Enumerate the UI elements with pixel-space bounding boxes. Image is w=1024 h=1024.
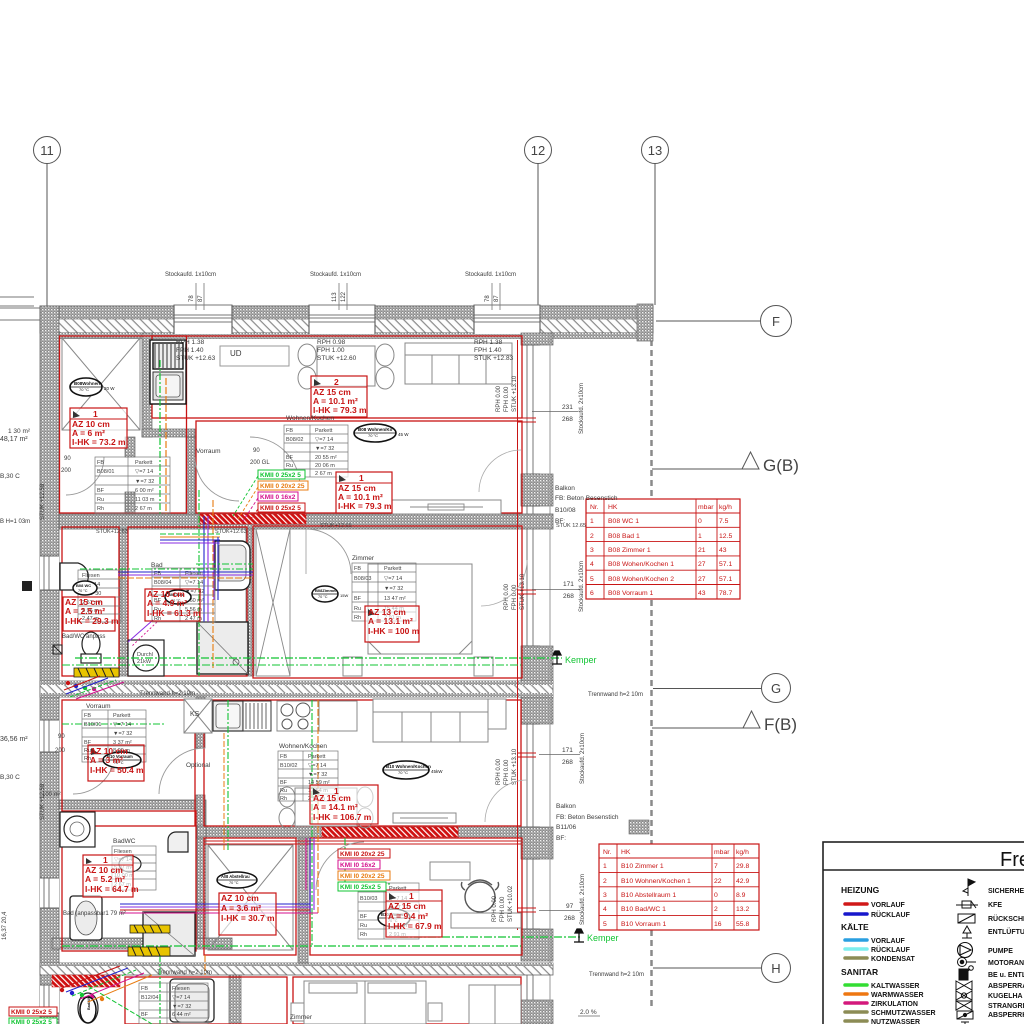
svg-text:I-HK = 73.2 m: I-HK = 73.2 m <box>72 437 126 447</box>
svg-text:1: 1 <box>103 855 108 865</box>
svg-text:BF: BF <box>354 596 362 602</box>
svg-text:kg/h: kg/h <box>719 504 732 511</box>
svg-text:87: 87 <box>494 295 500 302</box>
svg-text:G: G <box>771 681 781 696</box>
svg-text:268: 268 <box>564 915 575 922</box>
svg-text:STUK +12.83: STUK +12.83 <box>474 355 514 362</box>
svg-text:RPH 0.00: RPH 0.00 <box>496 385 502 412</box>
svg-text:RÜCKLAUF: RÜCKLAUF <box>871 910 911 919</box>
svg-text:1 30 m²: 1 30 m² <box>8 428 31 435</box>
svg-text:12: 12 <box>531 143 545 158</box>
svg-text:ABSPERRK: ABSPERRK <box>988 1012 1024 1019</box>
svg-text:B10/02: B10/02 <box>280 763 297 769</box>
svg-text:STUK+12.65: STUK+12.65 <box>320 523 352 529</box>
svg-text:AZ 10 cm: AZ 10 cm <box>221 893 259 903</box>
svg-text:Stockaufd. 2x10cm: Stockaufd. 2x10cm <box>580 733 586 784</box>
svg-text:FB: FB <box>154 571 161 577</box>
svg-text:B10/08: B10/08 <box>555 507 576 514</box>
svg-text:200: 200 <box>61 468 72 474</box>
svg-text:I-HK = 67.9 m: I-HK = 67.9 m <box>388 921 442 931</box>
svg-text:FPH 1.40: FPH 1.40 <box>474 347 502 354</box>
svg-text:Parkett: Parkett <box>384 566 402 572</box>
svg-text:I-HK = 61.3 m: I-HK = 61.3 m <box>147 608 201 618</box>
svg-text:78.7: 78.7 <box>719 590 732 597</box>
svg-text:Ru: Ru <box>286 463 293 469</box>
svg-text:RÜCKLAUF: RÜCKLAUF <box>871 945 911 954</box>
svg-text:▽=7 14: ▽=7 14 <box>135 469 153 475</box>
svg-text:171: 171 <box>563 581 574 588</box>
svg-text:A = 5.2 m²: A = 5.2 m² <box>85 874 125 884</box>
svg-text:A/B Abstellrau: A/B Abstellrau <box>221 874 250 879</box>
svg-text:6 44 m²: 6 44 m² <box>172 1012 191 1018</box>
svg-text:KFE: KFE <box>988 902 1002 909</box>
svg-text:B10 Zimmer 1: B10 Zimmer 1 <box>621 863 664 870</box>
svg-text:B08 WC: B08 WC <box>76 583 91 588</box>
svg-text:70 °C: 70 °C <box>78 589 88 593</box>
svg-text:BadWC: BadWC <box>113 838 136 845</box>
svg-text:36,56 m²: 36,56 m² <box>0 736 28 743</box>
svg-text:70 °C: 70 °C <box>368 433 378 438</box>
svg-text:A = 2.5 m²: A = 2.5 m² <box>65 606 105 616</box>
svg-text:13.2: 13.2 <box>736 906 749 913</box>
svg-text:Trennwand h=2 10m: Trennwand h=2 10m <box>589 972 644 978</box>
svg-text:70 °C: 70 °C <box>318 595 328 599</box>
svg-text:FB: FB <box>354 566 361 572</box>
svg-text:▽=7 14: ▽=7 14 <box>308 763 326 769</box>
svg-text:KONDENSAT: KONDENSAT <box>871 956 916 963</box>
svg-text:KS: KS <box>190 711 200 718</box>
svg-text:78: 78 <box>189 295 195 302</box>
svg-text:B08/04: B08/04 <box>154 580 171 586</box>
svg-text:4: 4 <box>603 906 607 913</box>
svg-text:Bad/Wn: Bad/Wn <box>87 995 91 1010</box>
svg-text:20 W: 20 W <box>104 386 115 391</box>
svg-text:Stockaufd. 2x10cm: Stockaufd. 2x10cm <box>579 383 585 434</box>
svg-text:12.5: 12.5 <box>719 533 732 540</box>
svg-text:1: 1 <box>603 863 607 870</box>
svg-text:BF: BF <box>280 780 288 786</box>
svg-text:B10 Wohnen/Kochen: B10 Wohnen/Kochen <box>386 764 431 769</box>
svg-text:mbar: mbar <box>698 504 714 511</box>
svg-text:Parkett: Parkett <box>315 428 333 434</box>
svg-text:90: 90 <box>58 734 65 740</box>
svg-text:21kW: 21kW <box>137 659 152 665</box>
svg-text:2: 2 <box>714 906 718 913</box>
svg-text:▽=7 14: ▽=7 14 <box>185 580 203 586</box>
svg-text:FPH 0.00: FPH 0.00 <box>504 759 510 785</box>
svg-text:20 55 m²: 20 55 m² <box>315 455 337 461</box>
svg-text:B10 Vorraum 1: B10 Vorraum 1 <box>621 921 667 928</box>
svg-text:▼=7 32: ▼=7 32 <box>135 479 154 485</box>
svg-text:KMII 0 20x2 25: KMII 0 20x2 25 <box>260 483 305 490</box>
svg-text:KMII 0 25x2 5: KMII 0 25x2 5 <box>260 472 301 479</box>
svg-text:RÜCKSCHLA: RÜCKSCHLA <box>988 914 1024 923</box>
svg-text:STRANGRE: STRANGRE <box>988 1003 1024 1010</box>
svg-text:BF:: BF: <box>556 835 566 842</box>
svg-text:FB: FB <box>84 713 91 719</box>
svg-text:H: H <box>771 961 780 976</box>
svg-text:1: 1 <box>698 533 702 540</box>
svg-text:RPH 0.00: RPH 0.00 <box>496 758 502 785</box>
svg-text:B08/01: B08/01 <box>97 469 114 475</box>
svg-text:▼=7 32: ▼=7 32 <box>308 772 327 778</box>
svg-text:90: 90 <box>253 448 260 454</box>
svg-text:BF: BF <box>141 1012 149 1018</box>
svg-text:7.5: 7.5 <box>719 518 729 525</box>
svg-text:STUK 12.65: STUK 12.65 <box>556 523 586 529</box>
svg-text:NUTZWASSER: NUTZWASSER <box>871 1019 920 1024</box>
svg-text:Rh: Rh <box>354 615 361 621</box>
svg-text:Parkett: Parkett <box>113 713 131 719</box>
svg-text:F: F <box>772 314 780 329</box>
svg-text:B08 Wohen/Kochen 1: B08 Wohen/Kochen 1 <box>608 561 674 568</box>
svg-text:VORLAUF: VORLAUF <box>871 902 906 909</box>
svg-text:I-HK = 79.3 m: I-HK = 79.3 m <box>313 405 367 415</box>
svg-text:ABSPERRA: ABSPERRA <box>988 983 1024 990</box>
svg-text:70 °C: 70 °C <box>79 387 89 392</box>
svg-text:▼=7 32: ▼=7 32 <box>384 586 403 592</box>
svg-text:FPH 0.00: FPH 0.00 <box>504 386 510 412</box>
svg-text:SANITAR: SANITAR <box>841 967 878 977</box>
svg-text:BF: BF <box>360 914 368 920</box>
svg-text:90: 90 <box>64 456 71 462</box>
svg-text:B10/03: B10/03 <box>360 896 377 902</box>
svg-text:Balkon: Balkon <box>555 485 575 492</box>
svg-text:B10 Abstellraum 1: B10 Abstellraum 1 <box>621 892 676 899</box>
svg-text:B,30 C: B,30 C <box>0 473 20 480</box>
svg-text:FPH 1.00: FPH 1.00 <box>317 347 345 354</box>
svg-text:▽=7 14: ▽=7 14 <box>113 722 131 728</box>
svg-text:87: 87 <box>198 295 204 302</box>
svg-text:FPH 0.00: FPH 0.00 <box>512 584 518 610</box>
svg-text:B08 Zimmer 1: B08 Zimmer 1 <box>608 547 651 554</box>
svg-text:42.9: 42.9 <box>736 878 749 885</box>
svg-text:HEIZUNG: HEIZUNG <box>841 885 880 895</box>
svg-text:29.8: 29.8 <box>736 863 749 870</box>
svg-text:STUK +12.63: STUK +12.63 <box>176 355 216 362</box>
svg-text:Rh: Rh <box>97 506 104 512</box>
svg-text:Optional: Optional <box>186 762 211 769</box>
svg-text:▼=7 32: ▼=7 32 <box>172 1004 191 1010</box>
svg-text:Stockaufd. 2x10cm: Stockaufd. 2x10cm <box>580 874 586 925</box>
svg-text:0: 0 <box>714 892 718 899</box>
svg-text:WARMWASSER: WARMWASSER <box>871 992 924 999</box>
svg-text:Trennwand h=2 10m: Trennwand h=2 10m <box>157 970 212 976</box>
svg-text:Bad (anpassbar1 79 m²: Bad (anpassbar1 79 m² <box>63 911 126 917</box>
svg-text:A = 14.1 m²: A = 14.1 m² <box>313 802 358 812</box>
svg-text:STUK +13.10: STUK +13.10 <box>512 375 518 412</box>
svg-text:Fliesen: Fliesen <box>114 849 132 855</box>
svg-text:STUK+12.63: STUK+12.63 <box>215 529 247 535</box>
svg-text:FPH 0.00: FPH 0.00 <box>500 896 506 922</box>
svg-text:Ru: Ru <box>354 606 361 612</box>
svg-text:VORLAUF: VORLAUF <box>871 938 906 945</box>
svg-text:ENTLÜFTU: ENTLÜFTU <box>988 927 1024 936</box>
svg-text:I-HK = 64.7 m: I-HK = 64.7 m <box>85 884 139 894</box>
svg-text:FB: FB <box>141 986 148 992</box>
svg-text:AZ 15 cm: AZ 15 cm <box>388 901 426 911</box>
svg-text:B10 Bad/WC 1: B10 Bad/WC 1 <box>621 906 666 913</box>
svg-text:78: 78 <box>485 295 491 302</box>
svg-text:22: 22 <box>714 878 722 885</box>
svg-text:Fre: Fre <box>1000 849 1024 871</box>
svg-text:SICHERHEIT: SICHERHEIT <box>988 888 1024 895</box>
svg-text:Ru: Ru <box>97 497 104 503</box>
svg-text:RPH 0.98: RPH 0.98 <box>317 339 346 346</box>
svg-text:16: 16 <box>714 921 722 928</box>
svg-text:13 47 m²: 13 47 m² <box>384 596 406 602</box>
svg-text:F(B): F(B) <box>764 715 797 734</box>
svg-text:HK: HK <box>621 849 631 856</box>
svg-text:I-HK = 30.7 m: I-HK = 30.7 m <box>221 913 275 923</box>
svg-text:Stockaufd. 1x10cm: Stockaufd. 1x10cm <box>165 272 216 278</box>
svg-text:mbar: mbar <box>714 849 730 856</box>
svg-text:Wohnen/Kochen: Wohnen/Kochen <box>279 743 327 750</box>
svg-text:UD: UD <box>230 349 242 358</box>
svg-text:97: 97 <box>566 903 574 910</box>
svg-text:FB: Beton Besenstich: FB: Beton Besenstich <box>555 495 618 502</box>
svg-text:Ru: Ru <box>280 788 287 794</box>
svg-text:BE u. ENTL: BE u. ENTL <box>988 972 1024 979</box>
svg-text:171: 171 <box>562 747 573 754</box>
svg-text:70 °C: 70 °C <box>229 881 239 885</box>
svg-text:1: 1 <box>409 891 414 901</box>
svg-text:KMII 0 25x2 5: KMII 0 25x2 5 <box>11 1009 52 1016</box>
svg-text:Kemper: Kemper <box>587 933 619 943</box>
svg-text:6: 6 <box>590 590 594 597</box>
svg-text:Parkett: Parkett <box>135 460 153 466</box>
svg-text:Nr.: Nr. <box>603 849 612 856</box>
svg-text:2: 2 <box>334 377 339 387</box>
svg-text:KÄLTE: KÄLTE <box>841 922 869 932</box>
svg-text:Fliesen: Fliesen <box>82 573 100 579</box>
svg-text:I-HK = 100 m: I-HK = 100 m <box>368 626 420 636</box>
svg-text:FB: Beton Besenstich: FB: Beton Besenstich <box>556 814 619 821</box>
svg-text:113: 113 <box>332 292 338 302</box>
svg-text:1: 1 <box>359 473 364 483</box>
svg-text:A = 4.9 m²: A = 4.9 m² <box>147 598 187 608</box>
svg-text:ZIRKULATION: ZIRKULATION <box>871 1001 918 1008</box>
svg-text:57.1: 57.1 <box>719 561 732 568</box>
svg-text:Fliesen: Fliesen <box>185 571 203 577</box>
svg-text:43: 43 <box>719 547 727 554</box>
svg-text:200 GL: 200 GL <box>250 460 270 466</box>
svg-text:B,30 C: B,30 C <box>0 774 20 781</box>
svg-text:KMI I0 20x2 25: KMI I0 20x2 25 <box>340 851 385 858</box>
svg-text:1: 1 <box>93 409 98 419</box>
svg-text:STUK +12.58: STUK +12.58 <box>40 783 46 820</box>
svg-text:STUK +12.60: STUK +12.60 <box>317 355 357 362</box>
svg-text:Zimmer: Zimmer <box>352 555 375 562</box>
svg-text:Stockaufd. 1x10cm: Stockaufd. 1x10cm <box>465 272 516 278</box>
svg-text:STUK +13.10: STUK +13.10 <box>512 748 518 785</box>
svg-text:21: 21 <box>698 547 706 554</box>
svg-text:A = 9.4 m²: A = 9.4 m² <box>388 911 428 921</box>
svg-text:2: 2 <box>603 878 607 885</box>
svg-text:B08 Wohen/Kochen 2: B08 Wohen/Kochen 2 <box>608 576 674 583</box>
svg-text:55.8: 55.8 <box>736 921 749 928</box>
svg-text:B08Zimmer: B08Zimmer <box>315 588 337 593</box>
svg-text:48,17 m²: 48,17 m² <box>0 436 28 443</box>
svg-text:2 67 m: 2 67 m <box>135 506 152 512</box>
svg-text:6 00 m²: 6 00 m² <box>135 488 154 494</box>
svg-text:KMII 0 25x2 5: KMII 0 25x2 5 <box>260 505 301 512</box>
svg-text:Stockaufd. 2x10cm: Stockaufd. 2x10cm <box>579 561 585 612</box>
svg-text:B08 Bad 1: B08 Bad 1 <box>608 533 640 540</box>
svg-text:13: 13 <box>648 143 662 158</box>
svg-text:7: 7 <box>714 863 718 870</box>
svg-text:KMI I0 20x2 25: KMI I0 20x2 25 <box>340 873 385 880</box>
svg-text:20 06 m: 20 06 m <box>315 463 335 469</box>
svg-text:▼=7 32: ▼=7 32 <box>113 731 132 737</box>
svg-text:Stockaufd. 1x10cm: Stockaufd. 1x10cm <box>310 272 361 278</box>
svg-text:BF: BF <box>97 488 105 494</box>
svg-text:45kW: 45kW <box>431 769 443 774</box>
svg-text:A = 3 m²: A = 3 m² <box>90 755 123 765</box>
svg-text:MOTORAN: MOTORAN <box>988 960 1024 967</box>
svg-text:11 03 m: 11 03 m <box>135 497 155 503</box>
svg-text:57.1: 57.1 <box>719 576 732 583</box>
svg-text:▽=7 14: ▽=7 14 <box>315 437 333 443</box>
svg-text:I-HK = 79.3 m: I-HK = 79.3 m <box>338 501 392 511</box>
svg-text:B08Wohnen: B08Wohnen <box>74 381 100 386</box>
svg-text:▽=7 14: ▽=7 14 <box>172 995 190 1001</box>
svg-text:KALTWASSER: KALTWASSER <box>871 983 919 990</box>
svg-text:5: 5 <box>603 921 607 928</box>
svg-text:122: 122 <box>341 291 347 302</box>
svg-text:G(B): G(B) <box>763 456 799 475</box>
svg-text:Wohnen/Kochen: Wohnen/Kochen <box>286 415 334 422</box>
svg-text:3: 3 <box>590 547 594 554</box>
svg-text:A = 3.6 m²: A = 3.6 m² <box>221 903 261 913</box>
svg-text:Zimmer: Zimmer <box>290 1014 313 1021</box>
svg-text:KUGELHA: KUGELHA <box>988 993 1023 1000</box>
svg-text:268: 268 <box>562 416 573 423</box>
svg-text:16,37 20,4: 16,37 20,4 <box>2 911 8 940</box>
svg-text:2 67 m: 2 67 m <box>315 471 332 477</box>
svg-text:BF: BF <box>286 455 294 461</box>
svg-text:2.0 %: 2.0 % <box>580 1009 597 1016</box>
svg-text:268: 268 <box>563 593 574 600</box>
svg-text:Trennwand h=2 10m: Trennwand h=2 10m <box>140 691 195 697</box>
svg-text:KMI I0 25x2 5: KMI I0 25x2 5 <box>340 884 381 891</box>
svg-text:B H=1 03m: B H=1 03m <box>0 519 30 525</box>
svg-text:0: 0 <box>698 518 702 525</box>
svg-text:Fliesen: Fliesen <box>172 986 190 992</box>
svg-text:43: 43 <box>698 590 706 597</box>
svg-text:I-HK = 50.4 m: I-HK = 50.4 m <box>90 765 144 775</box>
svg-text:Ru: Ru <box>360 923 367 929</box>
svg-text:Vorraum: Vorraum <box>86 703 111 710</box>
svg-text:STUK+12.63: STUK+12.63 <box>96 529 128 535</box>
svg-text:70 °C: 70 °C <box>398 770 408 775</box>
svg-text:KMII 0 25x2 5: KMII 0 25x2 5 <box>11 1019 52 1024</box>
svg-text:Nr.: Nr. <box>590 504 599 511</box>
svg-text:HK: HK <box>608 504 618 511</box>
svg-text:8.9: 8.9 <box>736 892 746 899</box>
svg-text:Durchl: Durchl <box>137 652 153 658</box>
svg-text:1: 1 <box>590 518 594 525</box>
svg-text:231: 231 <box>562 404 573 411</box>
svg-text:B12/04: B12/04 <box>141 995 158 1001</box>
svg-text:B11/06: B11/06 <box>556 824 577 831</box>
svg-text:▼=7 32: ▼=7 32 <box>315 446 334 452</box>
svg-text:▽=7 14: ▽=7 14 <box>384 576 402 582</box>
svg-text:Rh: Rh <box>280 796 287 802</box>
svg-text:RPH 1.38: RPH 1.38 <box>474 339 503 346</box>
svg-text:FB: FB <box>97 460 104 466</box>
svg-text:FB: FB <box>286 428 293 434</box>
svg-text:27: 27 <box>698 576 706 583</box>
svg-text:B08 WC 1: B08 WC 1 <box>608 518 639 525</box>
svg-text:B08 Vorraum 1: B08 Vorraum 1 <box>608 590 654 597</box>
svg-text:200: 200 <box>55 748 66 754</box>
svg-text:Kemper: Kemper <box>565 655 597 665</box>
svg-text:STUK +12.58: STUK +12.58 <box>40 483 46 520</box>
svg-text:B08 Wohnen/Ko: B08 Wohnen/Ko <box>358 427 393 432</box>
svg-text:27: 27 <box>698 561 706 568</box>
svg-text:I-HK = 106.7 m: I-HK = 106.7 m <box>313 812 372 822</box>
svg-text:5: 5 <box>590 576 594 583</box>
svg-text:Bad/WC anpass: Bad/WC anpass <box>62 634 105 640</box>
svg-text:A = 13.1 m²: A = 13.1 m² <box>368 616 413 626</box>
svg-text:RPH 0.00: RPH 0.00 <box>492 895 498 922</box>
svg-text:PUMPE: PUMPE <box>988 948 1013 955</box>
svg-text:B08/02: B08/02 <box>286 437 303 443</box>
svg-text:Rh: Rh <box>360 932 367 938</box>
svg-text:STUK +10.02: STUK +10.02 <box>508 885 514 922</box>
svg-text:2: 2 <box>590 533 594 540</box>
svg-text:11: 11 <box>40 143 54 158</box>
svg-text:kg/h: kg/h <box>736 849 749 856</box>
svg-text:B10 Wohnen/Kochen 1: B10 Wohnen/Kochen 1 <box>621 878 691 885</box>
svg-text:15W: 15W <box>340 593 348 598</box>
svg-text:3: 3 <box>603 892 607 899</box>
svg-text:45 W: 45 W <box>398 432 409 437</box>
svg-text:RPH 1.38: RPH 1.38 <box>176 339 205 346</box>
svg-text:FPH 1.40: FPH 1.40 <box>176 347 204 354</box>
svg-text:Vorraum: Vorraum <box>196 448 221 455</box>
svg-text:268: 268 <box>562 759 573 766</box>
svg-text:Trennwand h=2 10m: Trennwand h=2 10m <box>588 692 643 698</box>
svg-text:B08/03: B08/03 <box>354 576 371 582</box>
svg-text:FB: FB <box>280 754 287 760</box>
svg-text:KMII 0 16x2: KMII 0 16x2 <box>260 494 296 501</box>
svg-text:SCHMUTZWASSER: SCHMUTZWASSER <box>871 1010 936 1017</box>
svg-text:Parkett: Parkett <box>308 754 326 760</box>
svg-text:4: 4 <box>590 561 594 568</box>
svg-text:B10/01: B10/01 <box>84 722 101 728</box>
svg-text:KMI I0 16x2: KMI I0 16x2 <box>340 862 376 869</box>
svg-text:Balkon: Balkon <box>556 803 576 810</box>
svg-text:Bad: Bad <box>151 562 163 569</box>
svg-text:I-HK = 29.3 m: I-HK = 29.3 m <box>65 616 119 626</box>
